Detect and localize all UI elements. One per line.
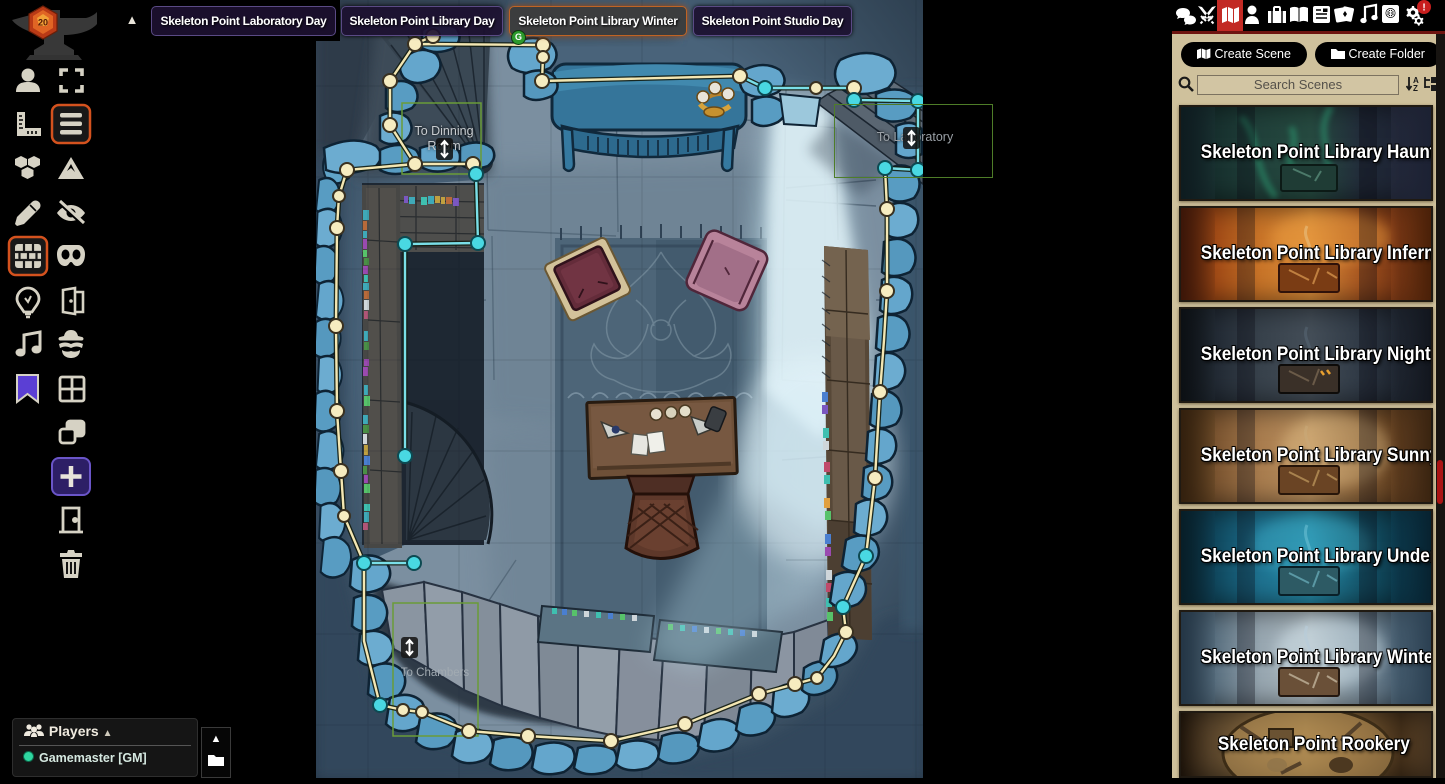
svg-text:Z: Z xyxy=(1413,84,1418,92)
svg-text:To Dinning: To Dinning xyxy=(414,124,473,138)
svg-text:20: 20 xyxy=(38,18,48,28)
svg-text:!: ! xyxy=(1422,3,1425,14)
svg-text:To Chambers: To Chambers xyxy=(401,667,470,679)
